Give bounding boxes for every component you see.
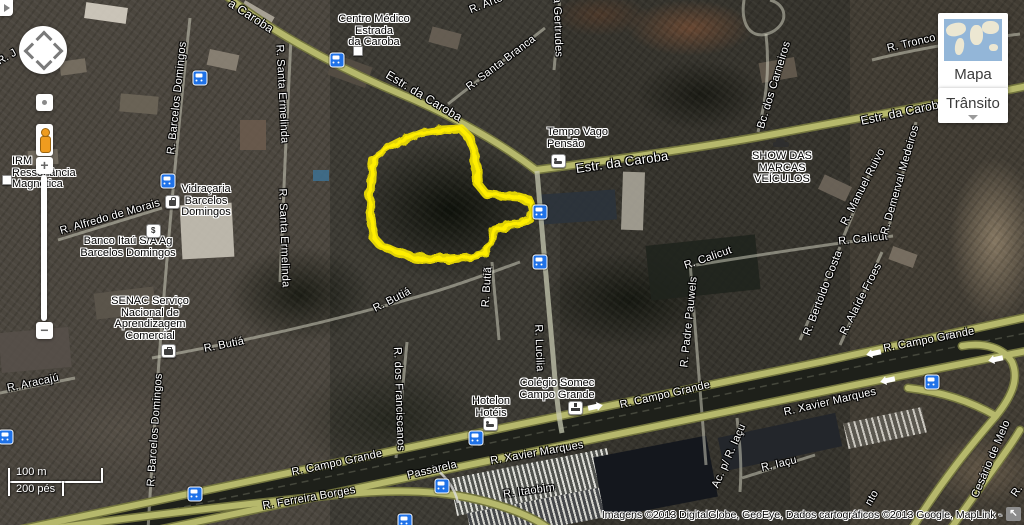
bus-stop-icon[interactable]: [193, 71, 208, 86]
pan-left-icon[interactable]: [24, 43, 41, 60]
map-type-label: Mapa: [938, 66, 1008, 83]
world-map-thumbnail-icon: [944, 19, 1002, 61]
poi-label: Banco Itaú S/A AgBarcelos Domingos: [80, 236, 175, 259]
zoom-in-button[interactable]: +: [36, 157, 53, 174]
bus-stop-icon[interactable]: [330, 53, 345, 68]
chevron-right-icon: [4, 4, 10, 12]
bus-stop-icon[interactable]: [435, 479, 450, 494]
square-icon: [353, 46, 363, 56]
poi-label: Colégio SomecCampo Grande: [519, 378, 594, 401]
sidebar-collapse-button[interactable]: [0, 0, 13, 16]
poi-label: Centro MédicoEstradada Caroba: [338, 14, 410, 49]
attribution-collapse-icon[interactable]: ↖: [1006, 507, 1021, 521]
pan-down-icon[interactable]: [36, 54, 53, 71]
attribution-text: Imagens ©2013 DigitalGlobe, GeoEye, Dado…: [602, 509, 1002, 521]
bed-icon: [483, 417, 498, 431]
bus-stop-icon[interactable]: [398, 514, 413, 525]
bus-stop-icon[interactable]: [469, 431, 484, 446]
street-label: R. Santa Gertrudes: [549, 0, 564, 57]
bus-stop-icon[interactable]: [533, 255, 548, 270]
bus-stop-icon[interactable]: [925, 375, 940, 390]
poi-label: HotelonHotéis: [472, 396, 510, 419]
bank-icon: [146, 224, 161, 238]
traffic-button[interactable]: Trânsito: [938, 88, 1008, 123]
zoom-out-button[interactable]: −: [36, 322, 53, 339]
case-icon: [161, 344, 176, 358]
bus-stop-icon[interactable]: [533, 205, 548, 220]
square-icon: [2, 175, 12, 185]
pan-control[interactable]: [19, 26, 67, 74]
poi-label: Tempo VagoPensão: [547, 127, 608, 150]
poi-label: SENAC ServiçoNacional deAprendizagemCome…: [111, 296, 189, 342]
bus-stop-icon[interactable]: [188, 487, 203, 502]
car-icon: [773, 137, 790, 149]
my-location-button[interactable]: [36, 94, 53, 111]
street-label: R. Lucilia: [532, 324, 546, 372]
poi-label: VidraçariaBarcelosDomingos: [181, 184, 231, 219]
zoom-slider[interactable]: [41, 175, 47, 321]
pegman-street-view-button[interactable]: [36, 124, 53, 156]
poi-label: SHOW DASMARCASVEÍCULOS: [752, 151, 812, 186]
map-canvas[interactable]: a CarobaEstr. da CarobaEstr. da CarobaEs…: [0, 0, 1024, 525]
bus-stop-icon[interactable]: [0, 430, 14, 445]
bed-icon: [551, 154, 566, 168]
school-icon: [568, 401, 583, 415]
chevron-down-icon: [968, 115, 978, 120]
bag-icon: [165, 195, 180, 209]
pan-right-icon[interactable]: [47, 43, 64, 60]
traffic-label: Trânsito: [938, 95, 1008, 112]
location-dot-icon: [42, 100, 47, 105]
bus-stop-icon[interactable]: [161, 174, 176, 189]
scale-metric-label: 100 m: [16, 466, 47, 478]
pan-up-icon[interactable]: [36, 31, 53, 48]
scale-imperial-label: 200 pés: [16, 483, 55, 495]
map-type-button[interactable]: Mapa: [938, 13, 1008, 90]
